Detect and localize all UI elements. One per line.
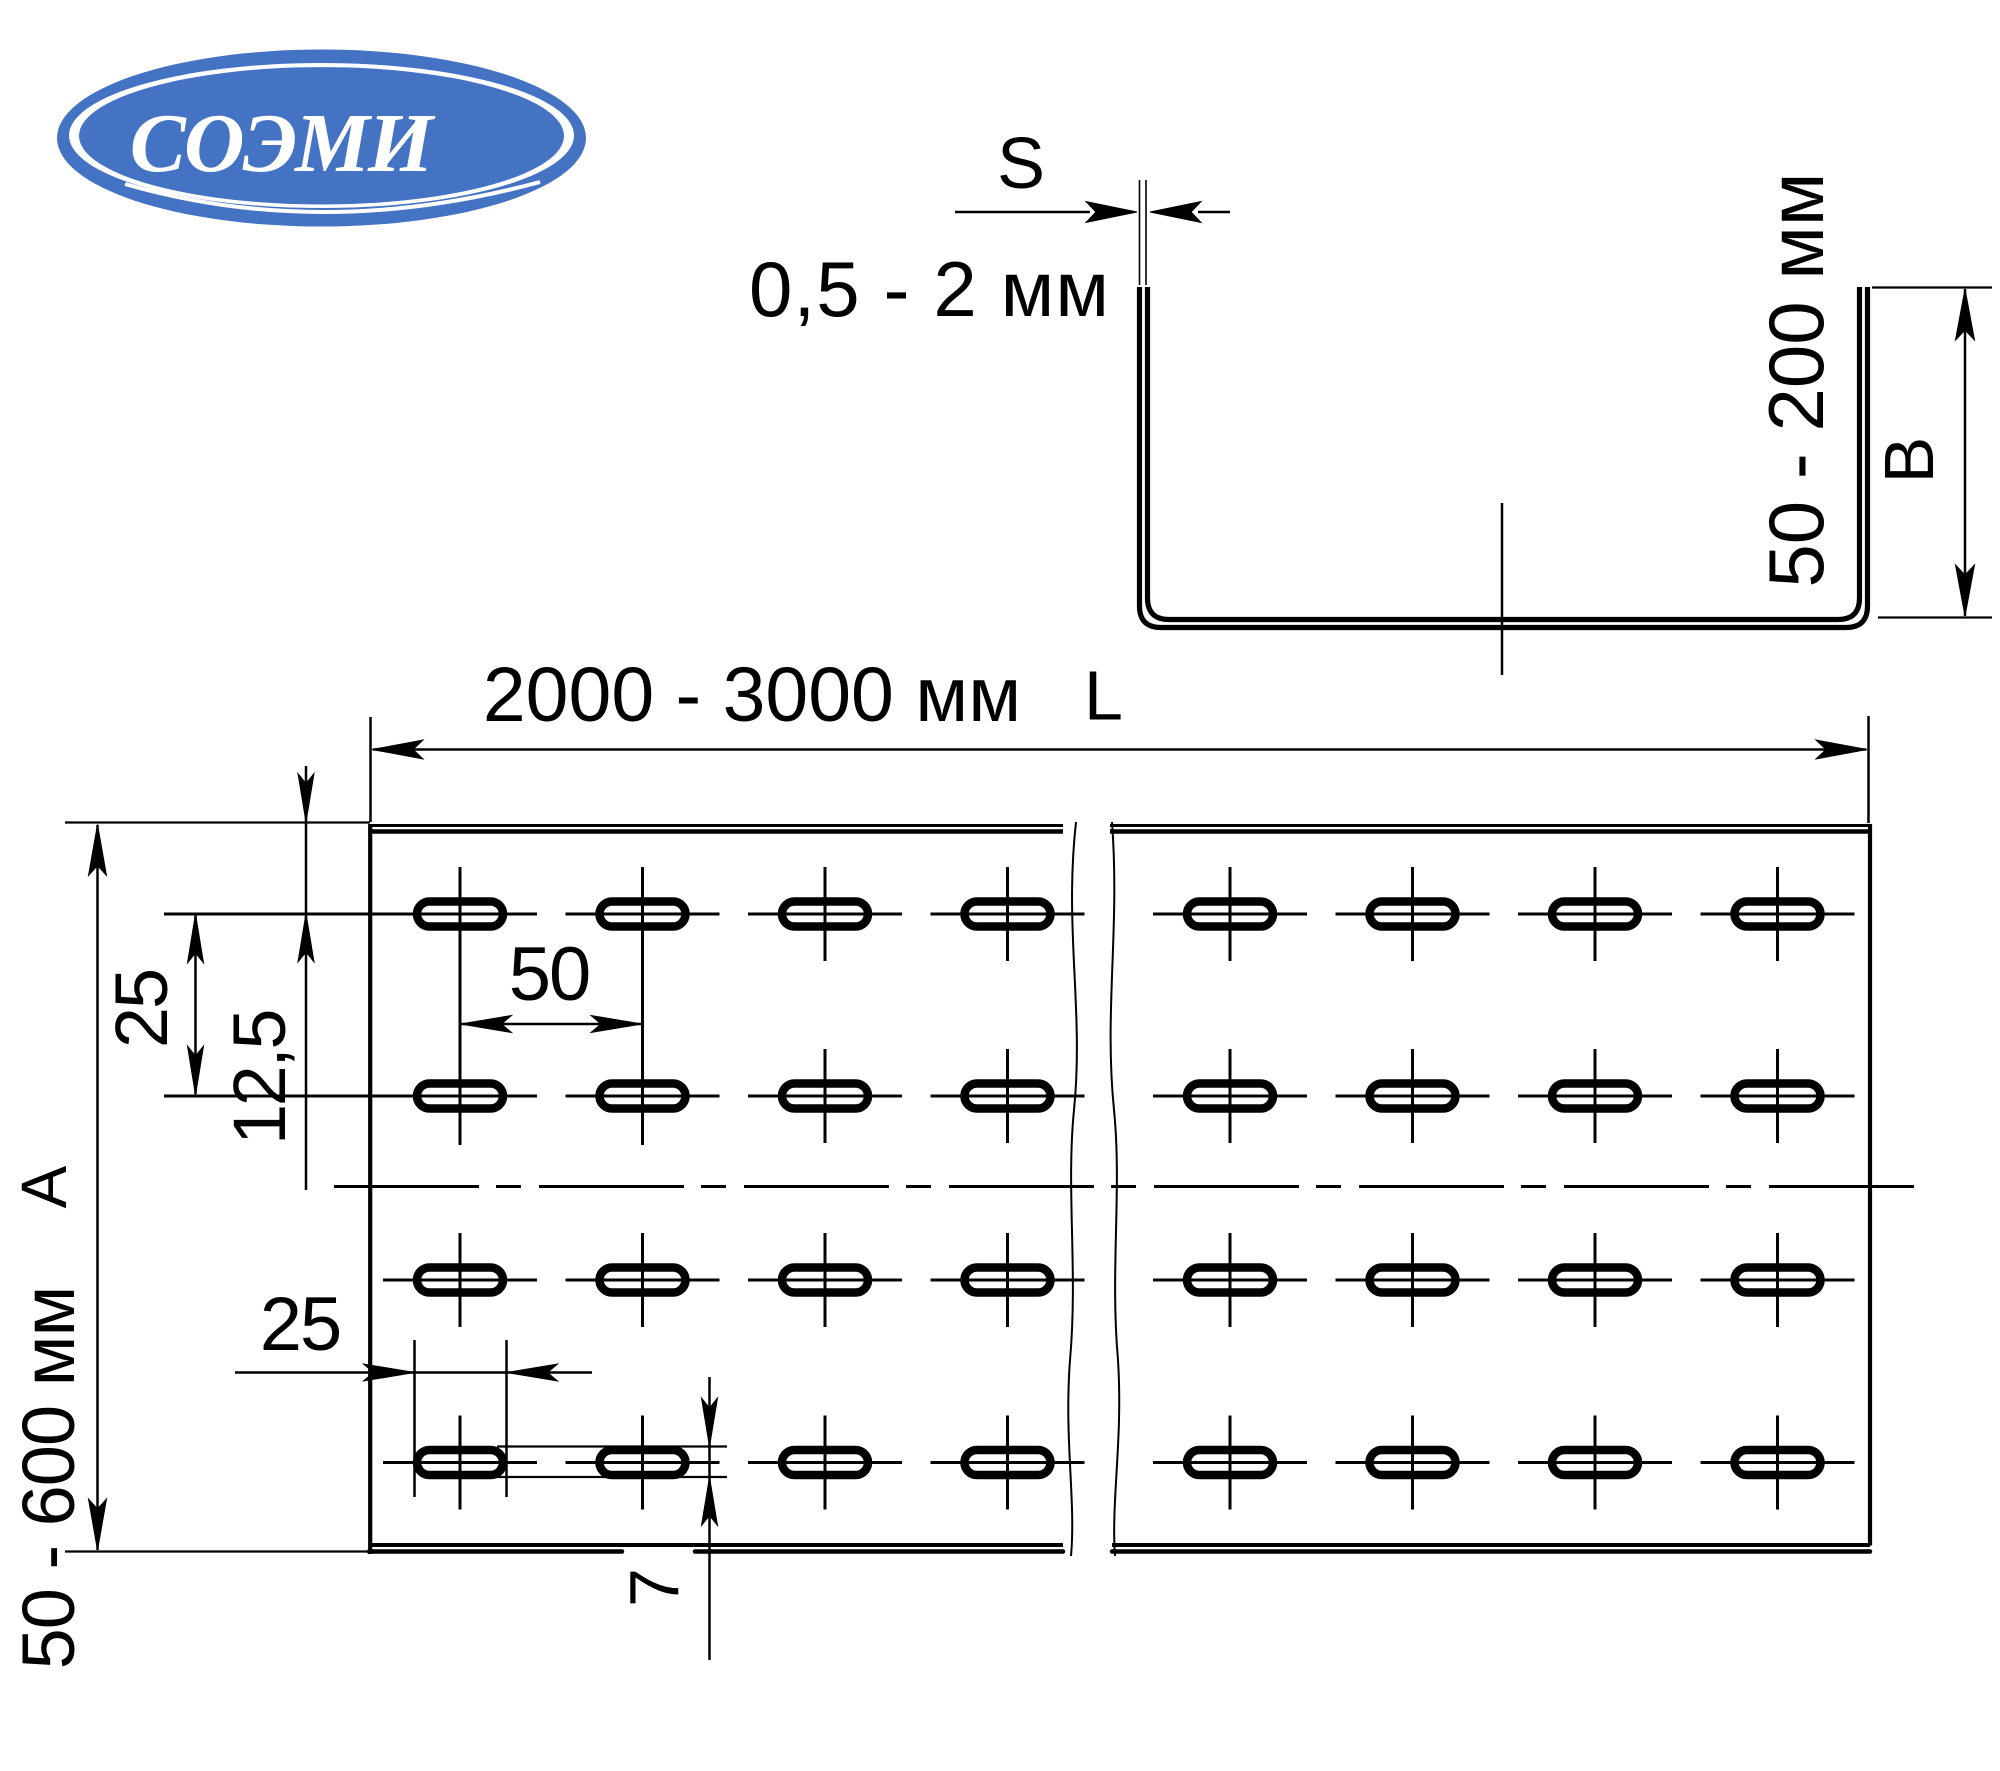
svg-text:50: 50 bbox=[509, 932, 590, 1017]
svg-text:A: A bbox=[8, 1165, 80, 1208]
svg-text:0,5 - 2 мм: 0,5 - 2 мм bbox=[749, 245, 1110, 333]
svg-text:СОЭМИ: СОЭМИ bbox=[130, 97, 436, 190]
svg-text:12,5: 12,5 bbox=[218, 1011, 301, 1145]
svg-text:2000 - 3000 мм: 2000 - 3000 мм bbox=[483, 652, 1021, 738]
svg-text:B: B bbox=[1870, 437, 1948, 484]
svg-text:25: 25 bbox=[100, 970, 183, 1048]
svg-text:7: 7 bbox=[615, 1568, 693, 1607]
svg-text:50 - 600 мм: 50 - 600 мм bbox=[7, 1287, 90, 1670]
svg-text:50 - 200 мм: 50 - 200 мм bbox=[1752, 172, 1840, 587]
svg-text:L: L bbox=[1084, 657, 1123, 735]
svg-text:S: S bbox=[997, 124, 1045, 204]
svg-text:25: 25 bbox=[260, 1282, 341, 1367]
